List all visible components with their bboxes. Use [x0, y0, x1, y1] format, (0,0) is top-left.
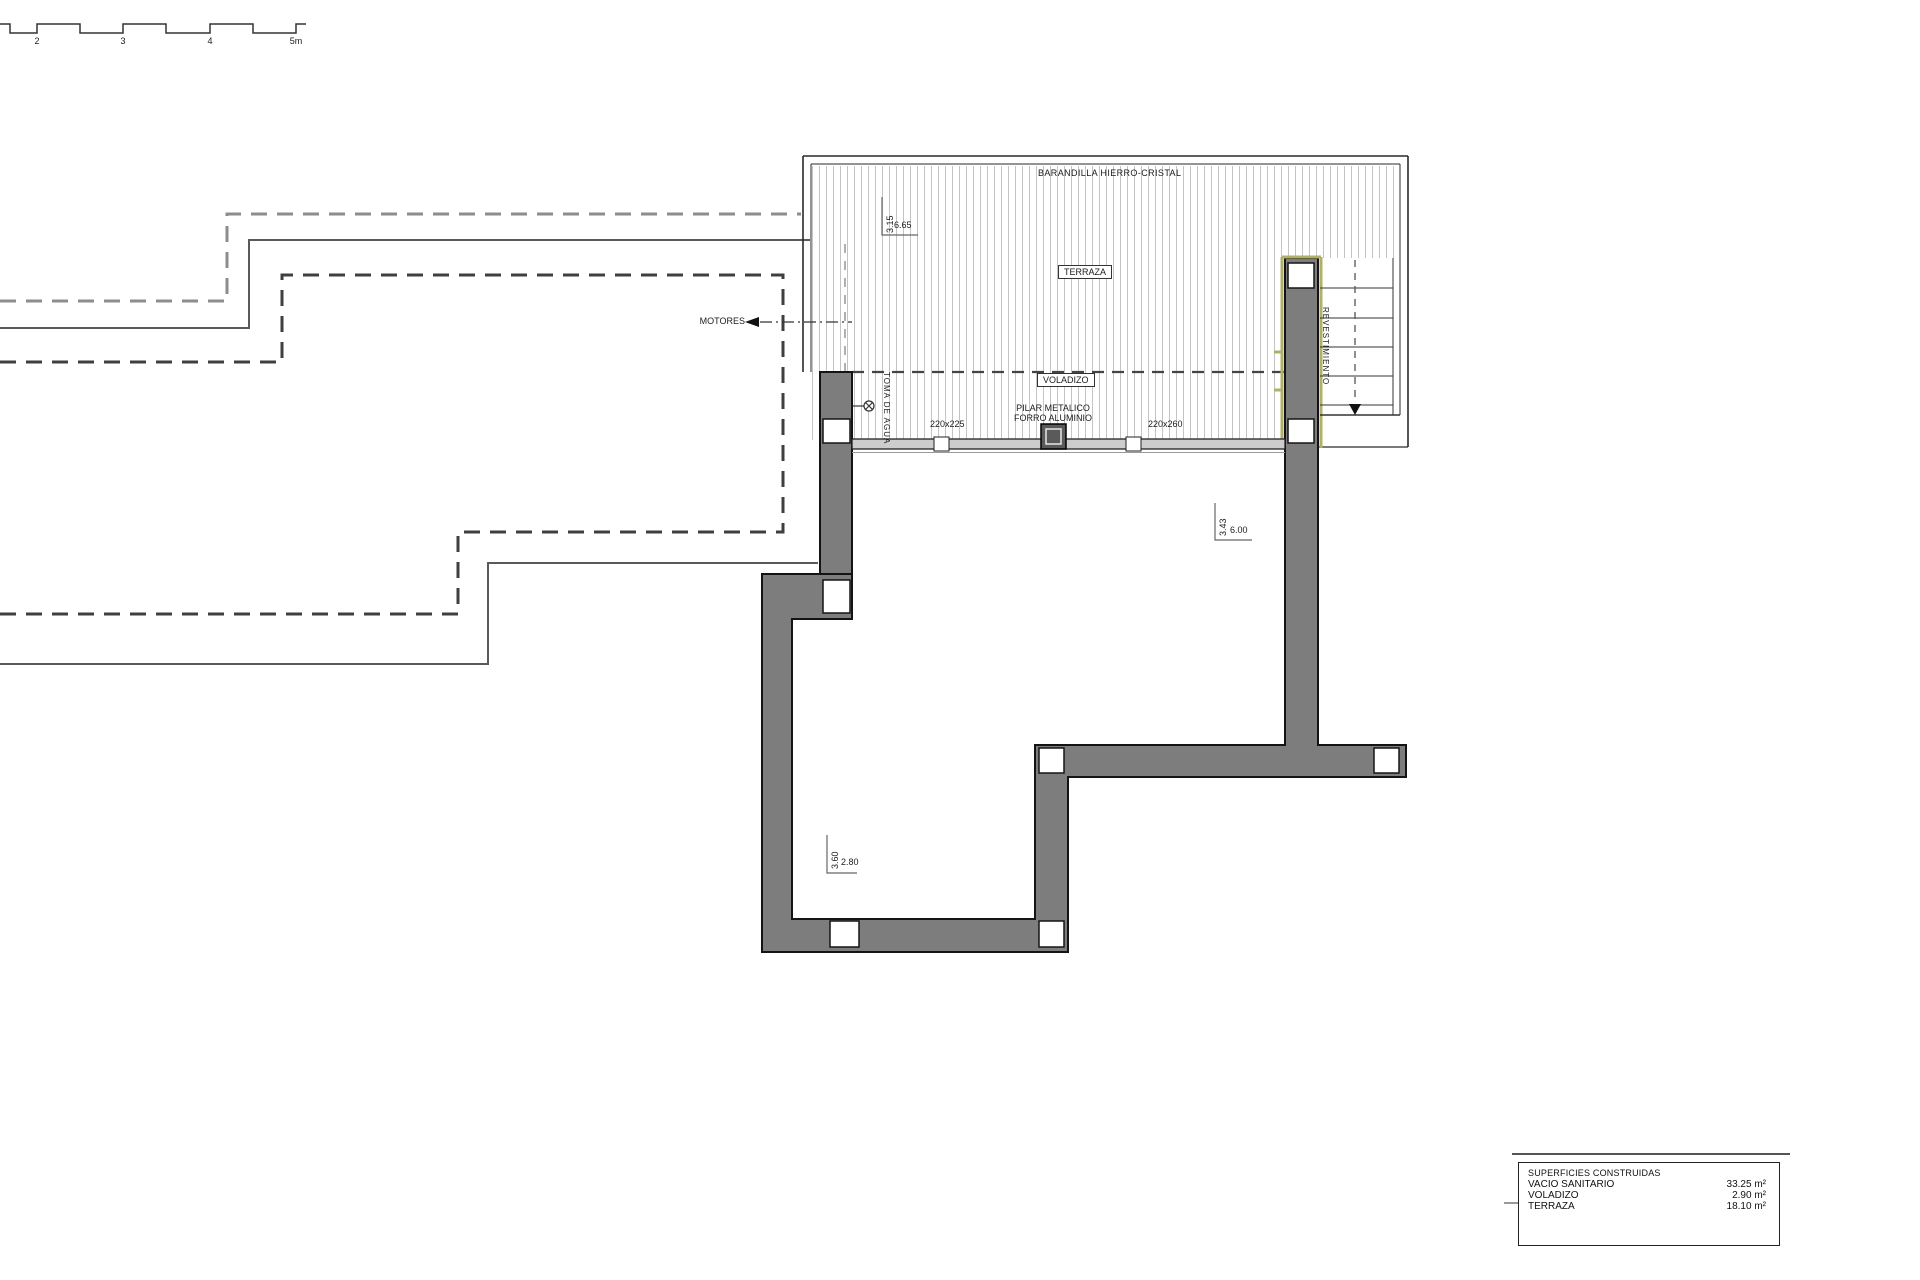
dim-terrace-horizontal: 6.65	[894, 221, 912, 230]
pilar-metalico-label: PILAR METALICO FORRO ALUMINIO	[1001, 403, 1105, 423]
metal-pillar	[1041, 424, 1066, 449]
area-value: 2.90 m²	[1732, 1190, 1766, 1201]
voladizo-label: VOLADIZO	[1037, 373, 1095, 387]
revestimiento-label: REVESTIMIENTO	[1321, 307, 1329, 381]
area-value: 33.25 m²	[1727, 1179, 1766, 1190]
pillar-opening	[1374, 748, 1399, 773]
areas-table: SUPERFICIES CONSTRUIDAS VACIO SANITARIO …	[1518, 1162, 1780, 1246]
scale-label-5m: 5m	[290, 37, 303, 46]
pillar-opening	[1039, 921, 1064, 947]
pilar-right-dim-label: 220x260	[1148, 420, 1183, 429]
motores-arrow-icon	[745, 317, 759, 327]
window-band	[852, 437, 1285, 453]
scale-label-2: 2	[34, 37, 39, 46]
dim-upper-room-vertical: 3.43	[1219, 518, 1228, 536]
wall-main-structure	[762, 258, 1406, 952]
pillar-opening	[1039, 748, 1064, 773]
area-name: VOLADIZO	[1528, 1190, 1579, 1201]
pillar-opening	[1288, 263, 1314, 288]
stair-walkline	[1349, 260, 1361, 415]
pillar-opening	[1288, 419, 1314, 443]
areas-table-top-rule	[1512, 1153, 1790, 1155]
pillar-opening	[823, 419, 850, 443]
dim-lower-room-horizontal: 2.80	[841, 858, 859, 867]
area-name: VACIO SANITARIO	[1528, 1179, 1614, 1190]
stair-direction-arrow-icon	[1349, 404, 1361, 415]
walls	[762, 258, 1406, 952]
area-value: 18.10 m²	[1727, 1201, 1766, 1212]
table-row: TERRAZA 18.10 m²	[1528, 1201, 1766, 1212]
scale-label-3: 3	[120, 37, 125, 46]
water-tap-icon	[852, 401, 874, 411]
motores-label: MOTORES	[693, 317, 745, 326]
floor-plan-drawing	[0, 0, 1920, 1280]
window-mullion	[934, 437, 949, 451]
scale-bar	[0, 24, 306, 33]
scale-label-4: 4	[207, 37, 212, 46]
area-name: TERRAZA	[1528, 1201, 1575, 1212]
dim-upper-room-horizontal: 6.00	[1230, 526, 1248, 535]
terraza-label: TERRAZA	[1058, 265, 1112, 279]
window-mullion	[1126, 437, 1141, 451]
roof-edge-outline-top	[0, 240, 810, 328]
pillar-opening	[830, 921, 859, 947]
toma-de-agua-label: TOMA DE AGUA	[882, 372, 890, 442]
pillar-opening	[823, 580, 850, 613]
areas-table-header: SUPERFICIES CONSTRUIDAS	[1528, 1168, 1779, 1178]
lower-floor-outline-dashed-outer	[0, 214, 801, 301]
pilar-left-dim-label: 220x225	[930, 420, 965, 429]
barandilla-label: BARANDILLA HIERRO-CRISTAL	[1038, 169, 1181, 178]
dim-lower-room-vertical: 3.60	[831, 851, 840, 869]
roof-edge-outline-bottom	[0, 563, 818, 664]
table-row: VOLADIZO 2.90 m²	[1528, 1190, 1766, 1201]
wall-left-upper	[820, 372, 852, 574]
floor-plan-page: 2 3 4 5m BARANDILLA HIERRO-CRISTAL TERRA…	[0, 0, 1920, 1280]
motores-leader	[745, 317, 852, 327]
table-row: VACIO SANITARIO 33.25 m²	[1528, 1179, 1766, 1190]
staircase	[1320, 258, 1400, 415]
